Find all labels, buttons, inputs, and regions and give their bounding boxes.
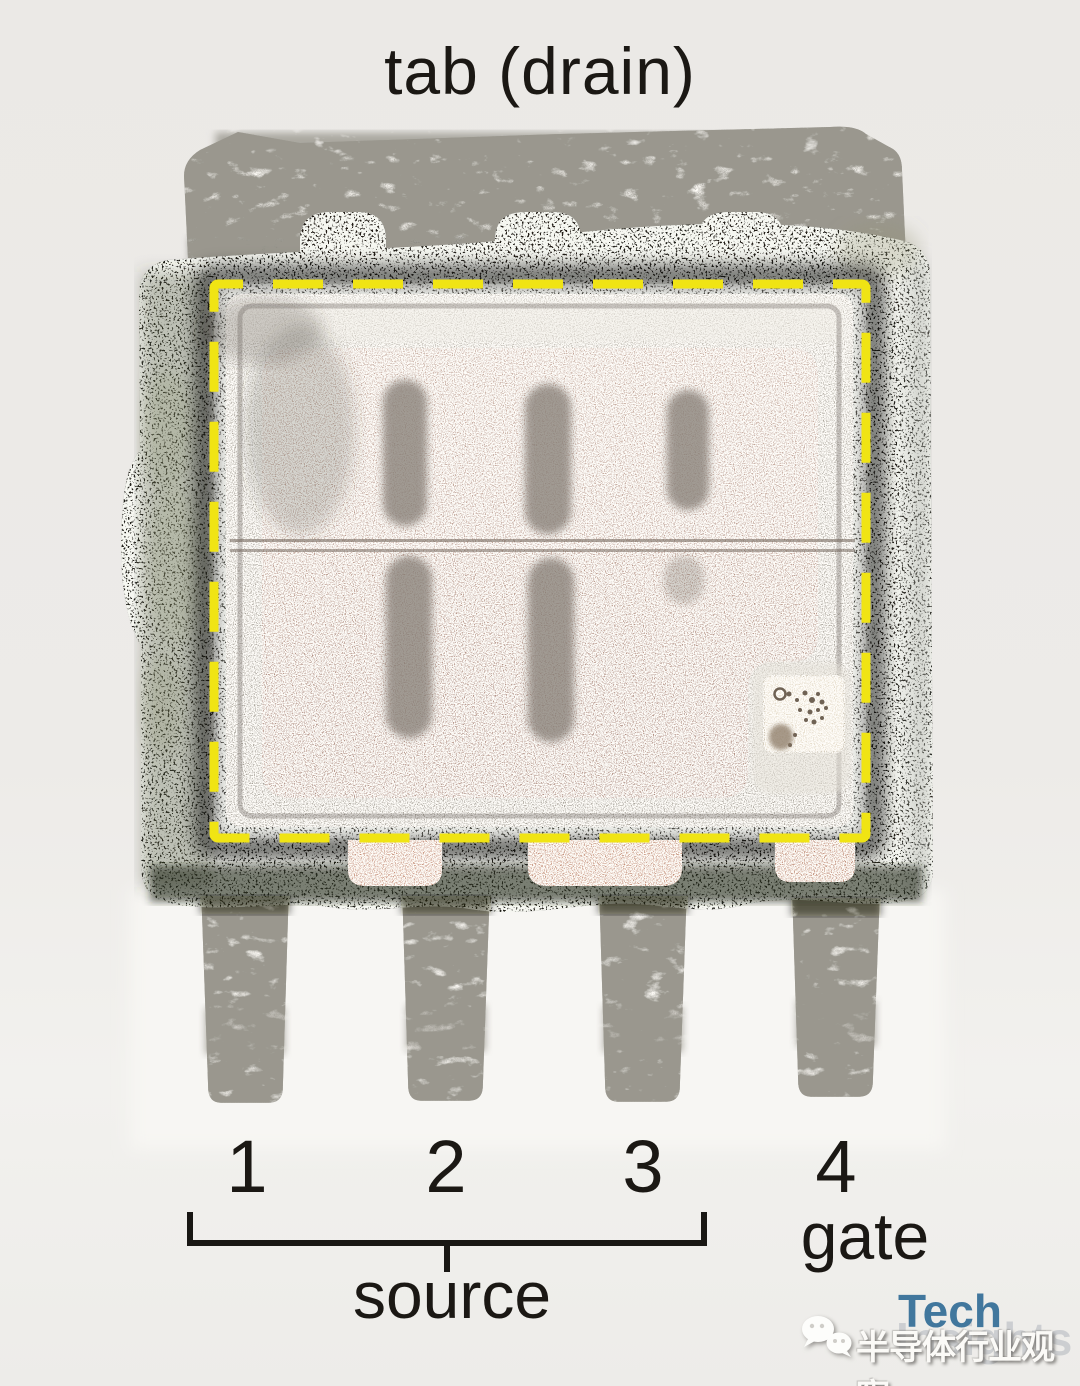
pin-number-4: 4 [776,1130,896,1204]
package-photo [0,0,1080,1386]
mold-boss-1 [300,212,386,262]
pin-1 [202,893,288,1102]
gate-label: gate [770,1203,960,1269]
tab-drain-label: tab (drain) [0,38,1080,104]
die-highlight-veil [214,284,866,838]
source-bracket [187,1212,707,1246]
pin-number-1: 1 [187,1130,307,1204]
pin-number-2: 2 [386,1130,506,1204]
annotated-package-figure: tab (drain) 1 2 3 4 source gate Insights… [0,0,1080,1386]
source-label: source [192,1262,712,1328]
pin-number-3: 3 [583,1130,703,1204]
pin-4 [793,896,879,1096]
pin-2 [403,893,489,1100]
mold-boss-3 [698,212,784,262]
mold-boss-2 [495,212,581,262]
pin-3 [600,893,686,1101]
